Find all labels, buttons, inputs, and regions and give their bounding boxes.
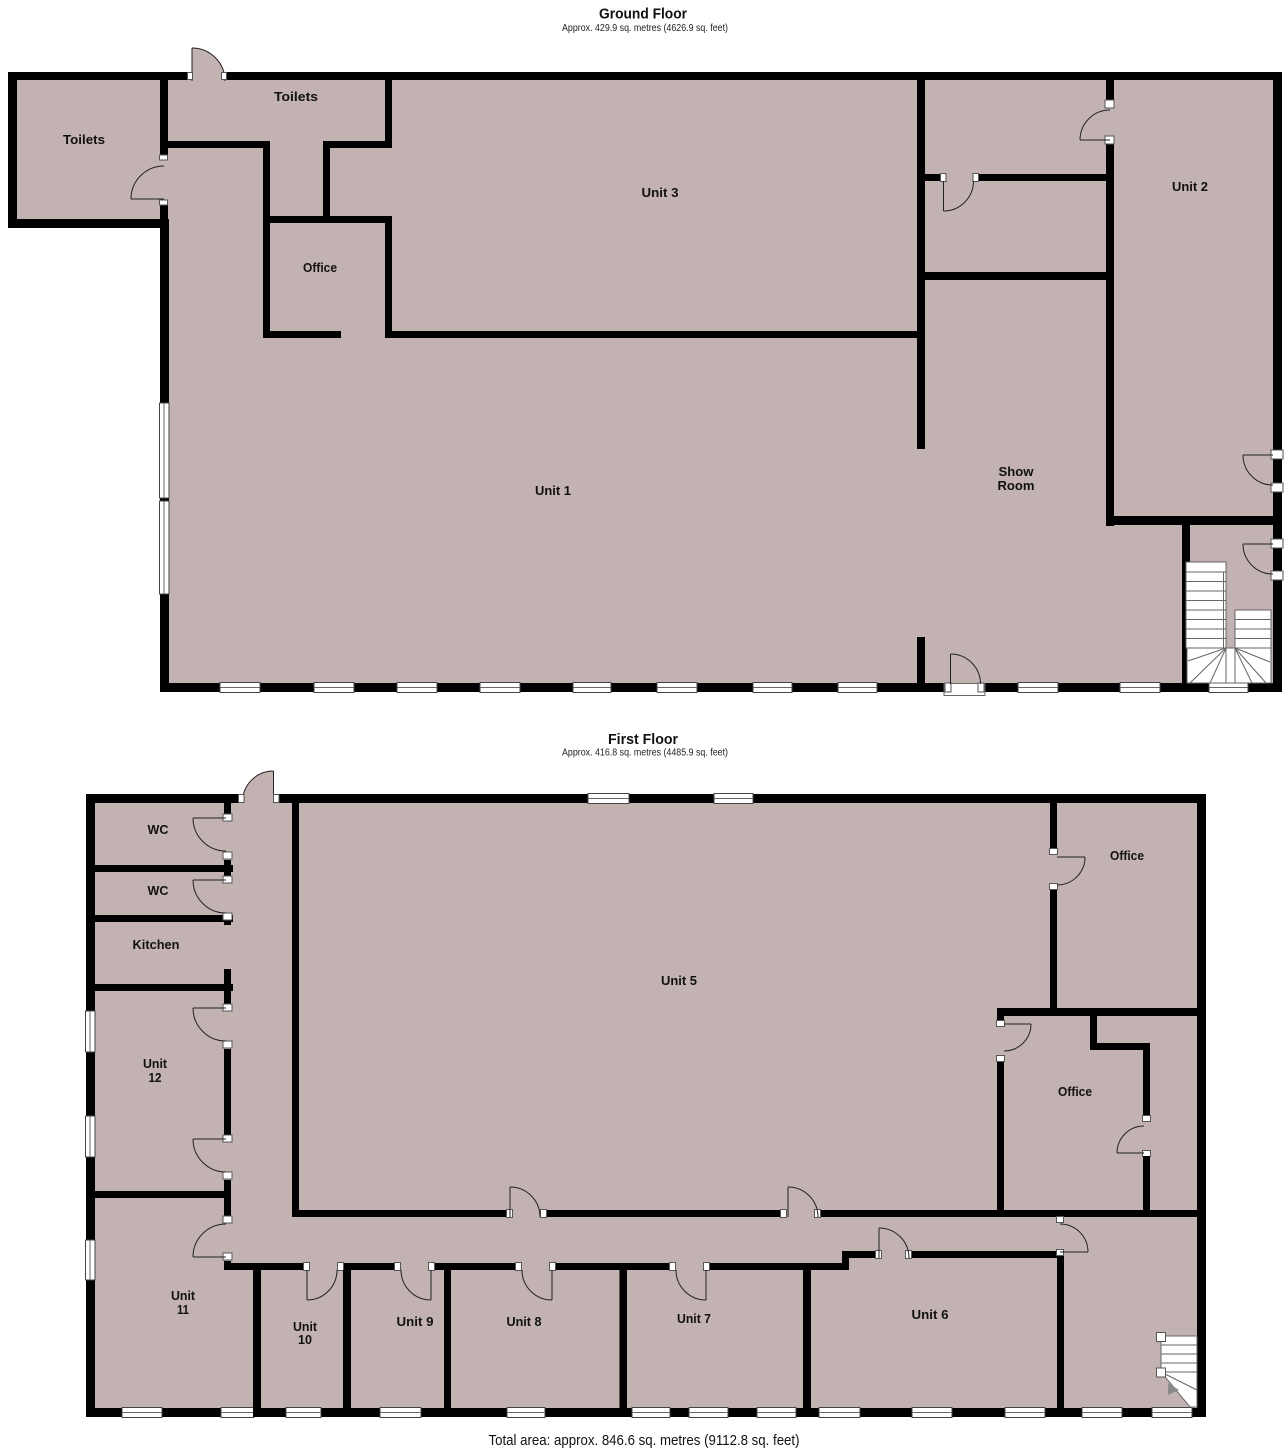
svg-text:Unit: Unit (143, 1056, 168, 1071)
svg-text:Total area: approx. 846.6 sq.: Total area: approx. 846.6 sq. metres (91… (489, 1432, 800, 1449)
svg-text:Unit 9: Unit 9 (397, 1314, 434, 1329)
svg-text:Unit 7: Unit 7 (677, 1311, 711, 1326)
svg-text:10: 10 (298, 1332, 312, 1347)
svg-text:WC: WC (148, 883, 170, 898)
svg-text:Office: Office (1058, 1084, 1092, 1099)
svg-text:Toilets: Toilets (274, 89, 318, 104)
svg-text:Approx. 429.9 sq. metres (4626: Approx. 429.9 sq. metres (4626.9 sq. fee… (562, 23, 728, 34)
svg-text:Unit 2: Unit 2 (1172, 179, 1208, 194)
svg-text:Kitchen: Kitchen (133, 937, 180, 952)
svg-text:Unit: Unit (171, 1288, 196, 1303)
svg-text:12: 12 (149, 1070, 162, 1085)
svg-text:WC: WC (148, 822, 170, 837)
svg-text:Show: Show (999, 464, 1035, 479)
svg-text:Unit 8: Unit 8 (507, 1314, 542, 1329)
svg-text:Approx. 416.8 sq. metres (4485: Approx. 416.8 sq. metres (4485.9 sq. fee… (562, 748, 728, 759)
svg-text:11: 11 (177, 1302, 189, 1317)
svg-text:Unit 6: Unit 6 (912, 1307, 949, 1322)
svg-text:First Floor: First Floor (608, 732, 678, 748)
svg-text:Room: Room (998, 478, 1035, 493)
svg-text:Office: Office (1110, 848, 1144, 863)
svg-text:Toilets: Toilets (63, 132, 105, 147)
svg-text:Unit 5: Unit 5 (661, 973, 697, 988)
svg-text:Unit 3: Unit 3 (642, 185, 679, 200)
svg-text:Office: Office (303, 260, 337, 275)
svg-text:Ground Floor: Ground Floor (599, 7, 687, 23)
svg-text:Unit 1: Unit 1 (535, 483, 571, 498)
